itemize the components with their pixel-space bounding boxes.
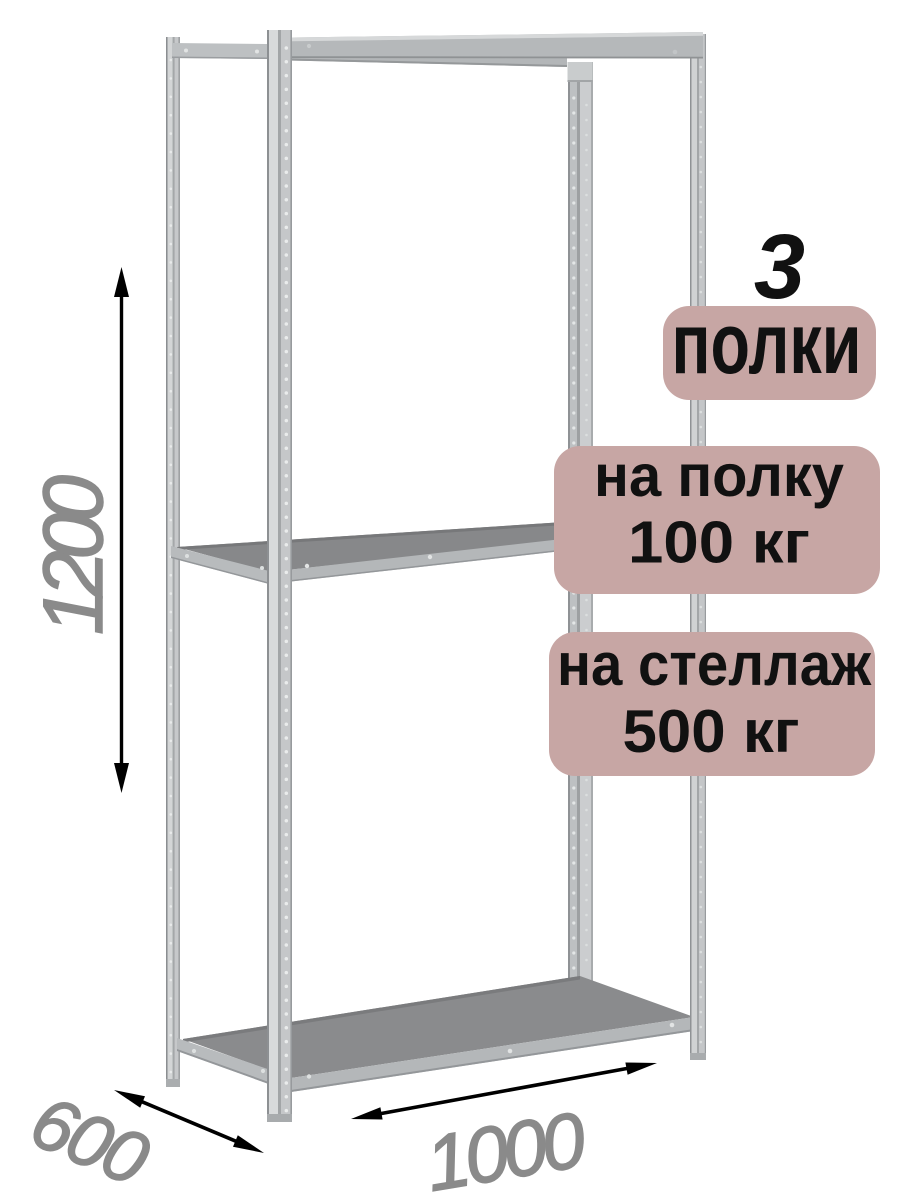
svg-text:1200: 1200 <box>26 475 120 635</box>
svg-text:на полку: на полку <box>594 443 844 509</box>
svg-text:полки: полки <box>672 296 862 392</box>
svg-text:500 кг: 500 кг <box>623 698 800 765</box>
svg-text:на стеллаж: на стеллаж <box>557 631 872 698</box>
svg-text:100 кг: 100 кг <box>628 510 810 576</box>
